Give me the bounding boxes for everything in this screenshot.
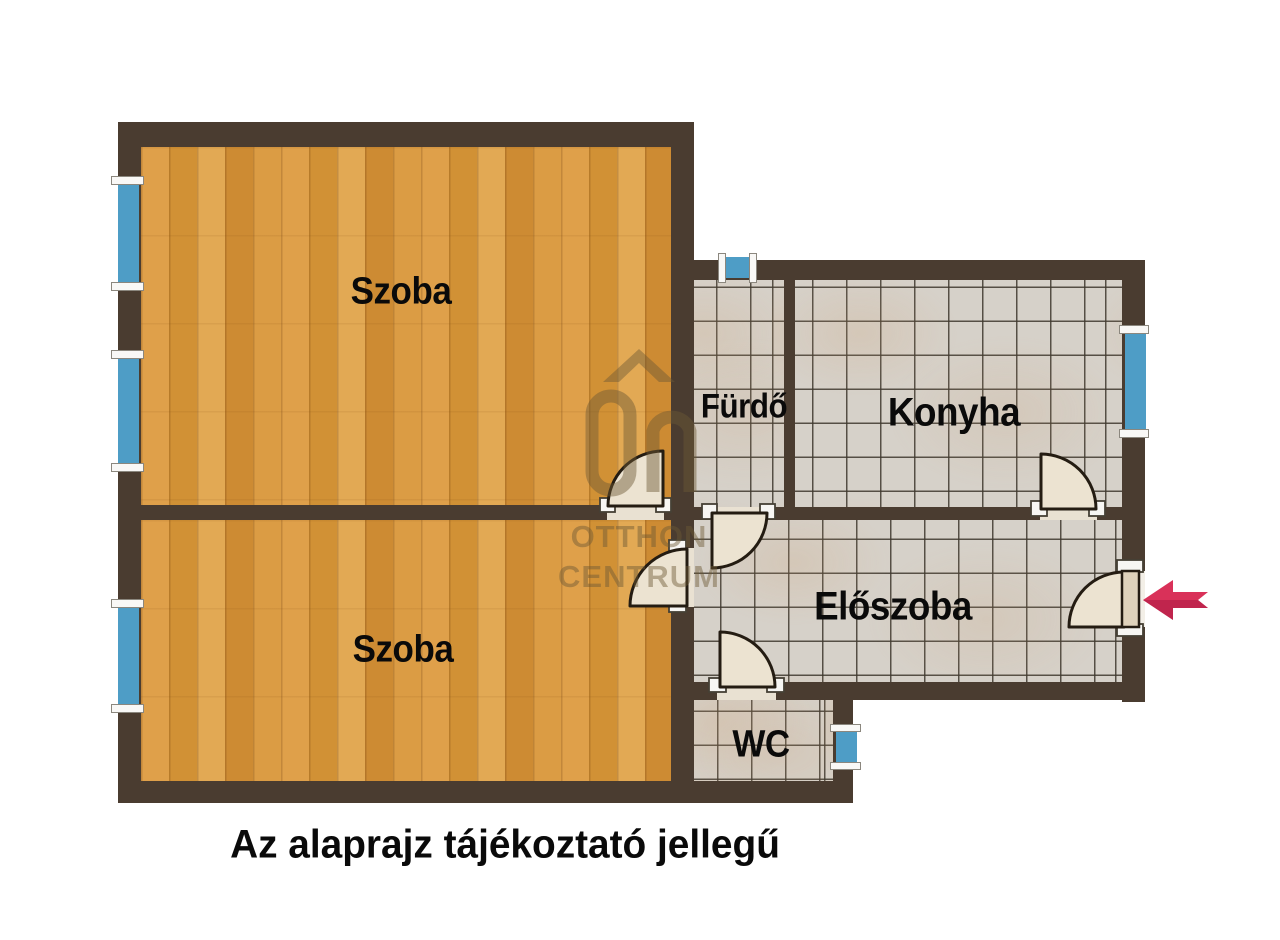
door-konyha: [1041, 454, 1096, 509]
disclaimer-caption: Az alaprajz tájékoztató jellegű: [230, 823, 780, 868]
door-wc: [720, 632, 775, 687]
watermark-letter-c: [653, 417, 690, 492]
label-furdo: Fürdő: [701, 388, 787, 427]
plan-overlay: OTTHON CENTRUM: [0, 0, 1280, 940]
door-entrance-leaf: [1122, 571, 1139, 627]
label-szoba-lower: Szoba: [353, 629, 454, 672]
label-eloszoba: Előszoba: [814, 585, 972, 630]
watermark-letter-o: [592, 396, 630, 490]
watermark-line1: OTTHON: [571, 519, 708, 554]
label-wc: WC: [732, 724, 789, 767]
label-konyha: Konyha: [888, 391, 1020, 436]
entrance-arrow-icon: [1143, 580, 1208, 620]
watermark-line2: CENTRUM: [558, 559, 720, 594]
label-szoba-upper: Szoba: [351, 271, 452, 314]
door-entrance-swing: [1069, 572, 1124, 627]
door-furdo: [712, 513, 767, 568]
floor-plan: OTTHON CENTRUM Szoba Szoba Fürdő Konyha …: [0, 0, 1280, 940]
watermark-roof-icon: [603, 349, 675, 382]
